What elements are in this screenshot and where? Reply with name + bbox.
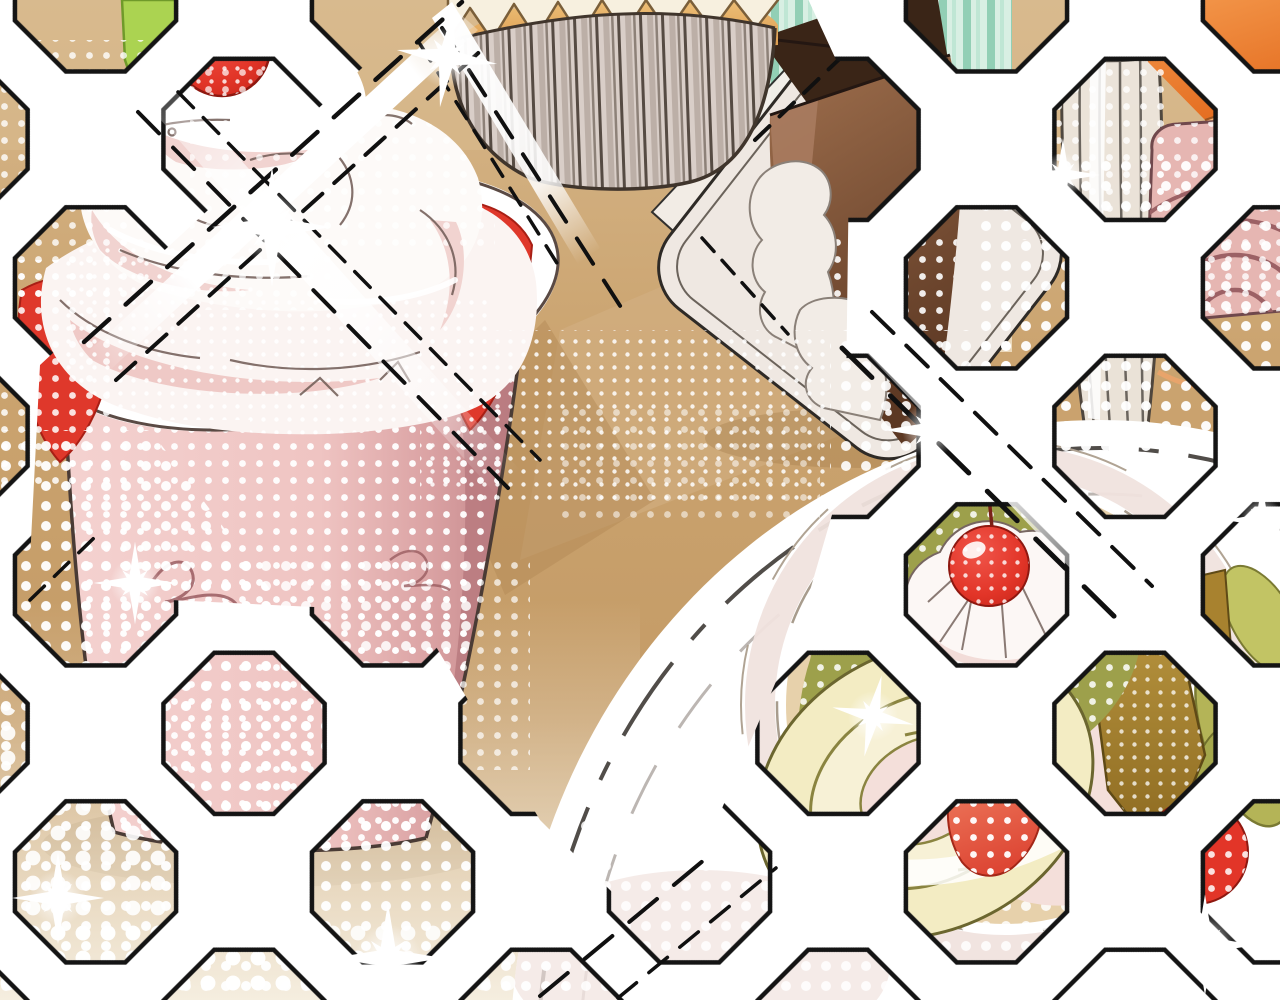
- illustration-canvas: [0, 0, 1280, 1000]
- manga-dessert-panel: Comic-style illustration of desserts on …: [0, 0, 1280, 1000]
- sparkle-lattice: [0, 0, 1280, 1000]
